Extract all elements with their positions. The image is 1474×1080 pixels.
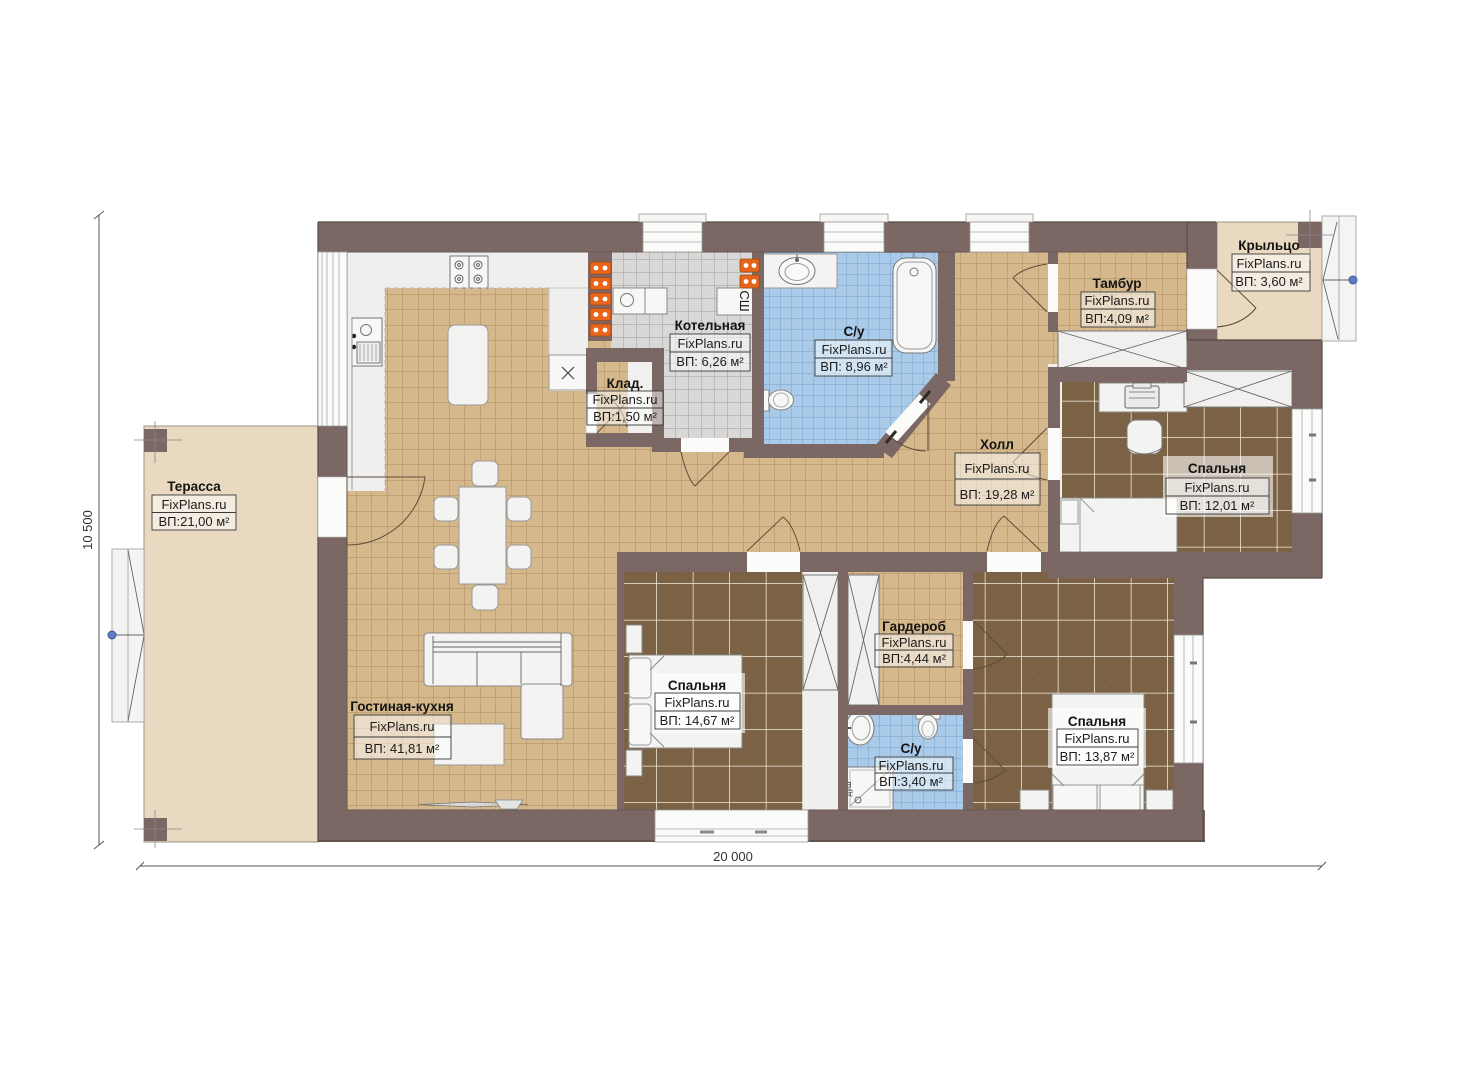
svg-text:С/у: С/у — [843, 324, 865, 339]
svg-text:Спальня: Спальня — [1068, 714, 1126, 729]
svg-text:FixPlans.ru: FixPlans.ru — [964, 461, 1029, 476]
svg-text:Терасса: Терасса — [167, 479, 221, 494]
svg-text:FixPlans.ru: FixPlans.ru — [1236, 256, 1301, 271]
svg-text:ВП: 14,67 м²: ВП: 14,67 м² — [660, 713, 735, 728]
svg-text:Котельная: Котельная — [675, 318, 746, 333]
svg-text:FixPlans.ru: FixPlans.ru — [1084, 293, 1149, 308]
svg-text:ВП: 19,28 м²: ВП: 19,28 м² — [960, 487, 1035, 502]
svg-text:Гостиная-кухня: Гостиная-кухня — [350, 699, 453, 714]
svg-text:FixPlans.ru: FixPlans.ru — [592, 392, 657, 407]
svg-text:FixPlans.ru: FixPlans.ru — [369, 719, 434, 734]
svg-text:20 000: 20 000 — [713, 849, 753, 864]
svg-text:FixPlans.ru: FixPlans.ru — [1184, 480, 1249, 495]
svg-text:ВП:3,40 м²: ВП:3,40 м² — [879, 774, 943, 789]
svg-text:ВП:4,44 м²: ВП:4,44 м² — [882, 651, 946, 666]
svg-text:ВП: 6,26 м²: ВП: 6,26 м² — [676, 354, 744, 369]
svg-text:С/у: С/у — [900, 741, 922, 756]
svg-text:FixPlans.ru: FixPlans.ru — [664, 695, 729, 710]
svg-text:ВП:4,09 м²: ВП:4,09 м² — [1085, 311, 1149, 326]
svg-text:ВП: 41,81 м²: ВП: 41,81 м² — [365, 741, 440, 756]
svg-text:ВП:21,00 м²: ВП:21,00 м² — [158, 514, 230, 529]
svg-text:FixPlans.ru: FixPlans.ru — [881, 635, 946, 650]
svg-text:Тамбур: Тамбур — [1093, 276, 1142, 291]
svg-text:ВП: 3,60 м²: ВП: 3,60 м² — [1235, 274, 1303, 289]
svg-text:Клад.: Клад. — [607, 376, 644, 391]
svg-text:10 500: 10 500 — [80, 510, 95, 550]
svg-text:ВП: 13,87 м²: ВП: 13,87 м² — [1060, 749, 1135, 764]
svg-text:Холл: Холл — [980, 437, 1014, 452]
svg-text:Спальня: Спальня — [668, 678, 726, 693]
svg-text:FixPlans.ru: FixPlans.ru — [821, 342, 886, 357]
svg-text:FixPlans.ru: FixPlans.ru — [878, 758, 943, 773]
svg-text:Гардероб: Гардероб — [882, 619, 946, 634]
svg-text:Крыльцо: Крыльцо — [1238, 238, 1299, 253]
svg-text:ВП: 8,96 м²: ВП: 8,96 м² — [820, 359, 888, 374]
svg-text:СШ: СШ — [737, 290, 752, 311]
svg-text:FixPlans.ru: FixPlans.ru — [677, 336, 742, 351]
svg-text:FixPlans.ru: FixPlans.ru — [1064, 731, 1129, 746]
svg-text:FixPlans.ru: FixPlans.ru — [161, 497, 226, 512]
svg-text:ВП:1,50 м²: ВП:1,50 м² — [593, 409, 657, 424]
svg-text:Спальня: Спальня — [1188, 461, 1246, 476]
svg-text:ВП: 12,01 м²: ВП: 12,01 м² — [1180, 498, 1255, 513]
